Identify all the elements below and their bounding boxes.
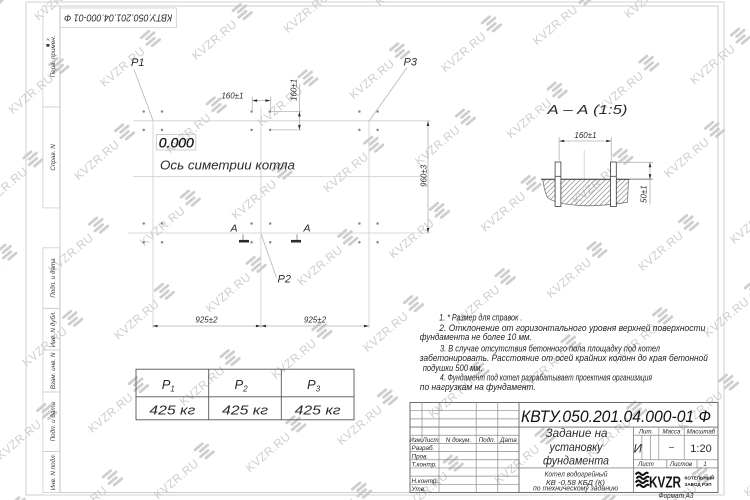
svg-text:Н.контр.: Н.контр. bbox=[412, 478, 439, 485]
svg-text:подушки 500 мм.: подушки 500 мм. bbox=[423, 363, 483, 373]
svg-text:Утв.: Утв. bbox=[411, 486, 426, 493]
svg-text:Лист: Лист bbox=[637, 461, 654, 468]
svg-text:Инв. N дубл.: Инв. N дубл. bbox=[49, 311, 57, 347]
svg-text:Лист: Лист bbox=[421, 437, 438, 444]
svg-text:И: И bbox=[634, 443, 643, 455]
svg-text:3. В случае отсутствия бетонно: 3. В случае отсутствия бетонного пола пл… bbox=[440, 344, 661, 354]
svg-text:по техническому заданию: по техническому заданию bbox=[533, 484, 618, 493]
svg-text:КВТУ.050.201.04.000-01 Ф: КВТУ.050.201.04.000-01 Ф bbox=[64, 12, 172, 24]
svg-text:425 кг: 425 кг bbox=[149, 404, 195, 418]
svg-text:160±1: 160±1 bbox=[290, 79, 299, 101]
svg-text:забетонировать. Расстояние от: забетонировать. Расстояние от осей крайн… bbox=[419, 353, 708, 363]
svg-text:A: A bbox=[302, 223, 310, 235]
svg-text:А – А (1:5): А – А (1:5) bbox=[546, 102, 627, 117]
svg-text:Взам. инв. N: Взам. инв. N bbox=[50, 352, 57, 389]
svg-text:1. * Размер для справок .: 1. * Размер для справок . bbox=[439, 313, 522, 323]
svg-text:x: x bbox=[46, 38, 52, 42]
svg-text:P2: P2 bbox=[278, 274, 291, 286]
svg-text:0.000: 0.000 bbox=[159, 135, 194, 151]
svg-text:KVZR: KVZR bbox=[649, 475, 681, 492]
svg-text:925±2: 925±2 bbox=[304, 316, 327, 325]
svg-text:Изм.: Изм. bbox=[409, 437, 422, 444]
svg-text:–: – bbox=[668, 442, 675, 452]
svg-text:1:20: 1:20 bbox=[690, 443, 711, 455]
svg-text:Ось симетрии котла: Ось симетрии котла bbox=[160, 159, 295, 173]
svg-text:ЗАВОД РЭП: ЗАВОД РЭП bbox=[685, 482, 712, 488]
svg-text:925±2: 925±2 bbox=[195, 316, 218, 325]
svg-text:A: A bbox=[229, 223, 237, 235]
svg-text:160±1: 160±1 bbox=[221, 92, 243, 101]
svg-text:фундамента не более 10 мм.: фундамента не более 10 мм. bbox=[420, 332, 532, 342]
svg-text:Справ. N: Справ. N bbox=[50, 144, 57, 171]
svg-text:Инв. N подл.: Инв. N подл. bbox=[49, 454, 57, 491]
svg-text:50±1: 50±1 bbox=[640, 185, 649, 203]
svg-text:160±1: 160±1 bbox=[574, 131, 596, 140]
svg-text:Разраб.: Разраб. bbox=[412, 444, 435, 452]
svg-text:N докум.: N докум. bbox=[446, 436, 471, 444]
svg-text:P3: P3 bbox=[404, 57, 418, 69]
svg-text:1: 1 bbox=[703, 461, 707, 468]
svg-text:по нагрузкам на фундамент.: по нагрузкам на фундамент. bbox=[420, 382, 536, 392]
svg-text:Масштаб: Масштаб bbox=[687, 428, 716, 435]
svg-text:425 кг: 425 кг bbox=[295, 404, 341, 418]
svg-text:Листов: Листов bbox=[669, 461, 692, 468]
svg-text:960±3: 960±3 bbox=[420, 164, 429, 187]
svg-text:Подп.: Подп. bbox=[479, 436, 496, 444]
svg-text:Лит.: Лит. bbox=[638, 428, 653, 435]
svg-text:4. Фундамент под котел разраба: 4. Фундамент под котел разрабатывает про… bbox=[440, 373, 652, 383]
svg-text:Т.контр.: Т.контр. bbox=[412, 462, 437, 469]
svg-text:425 кг: 425 кг bbox=[222, 404, 268, 418]
svg-text:Пров.: Пров. bbox=[412, 453, 429, 460]
svg-text:фундамента: фундамента bbox=[543, 455, 609, 467]
svg-text:Подп. и дата: Подп. и дата bbox=[49, 401, 57, 441]
svg-text:Формат А3: Формат А3 bbox=[659, 493, 694, 500]
svg-text:Масса: Масса bbox=[662, 428, 681, 435]
svg-text:установку: установку bbox=[549, 442, 604, 454]
svg-text:КВТУ.050.201.04.000-01 Ф: КВТУ.050.201.04.000-01 Ф bbox=[521, 408, 711, 426]
svg-text:Задание на: Задание на bbox=[546, 428, 608, 440]
svg-text:Дата: Дата bbox=[499, 437, 517, 444]
svg-text:Подп. и дата: Подп. и дата bbox=[49, 258, 57, 298]
svg-text:P1: P1 bbox=[131, 57, 144, 69]
